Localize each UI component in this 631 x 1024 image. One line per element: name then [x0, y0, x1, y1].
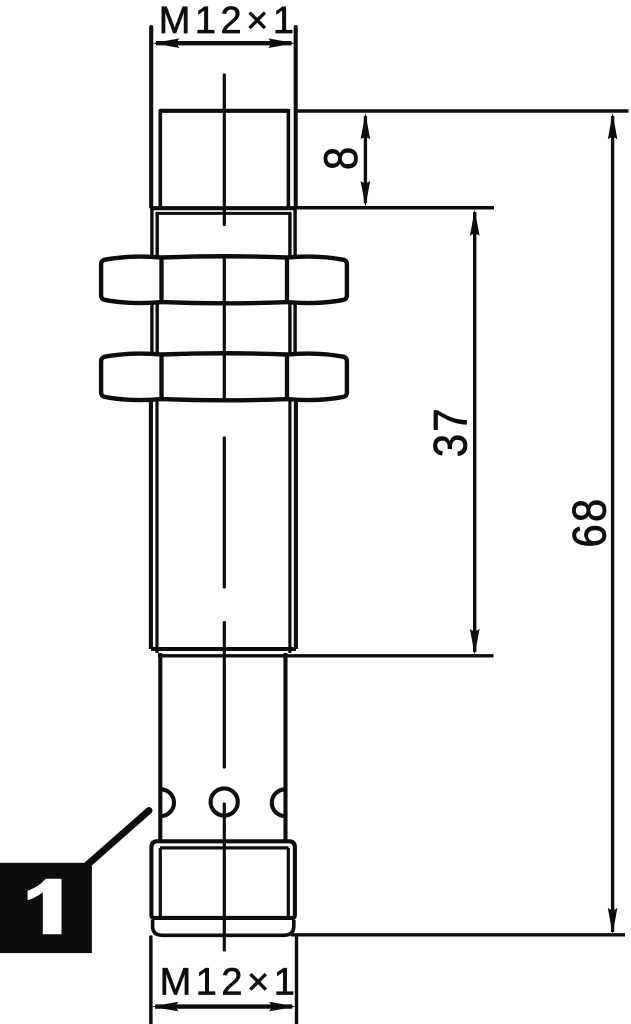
svg-text:8: 8: [315, 147, 368, 170]
svg-text:M12×1: M12×1: [160, 962, 300, 1004]
svg-text:68: 68: [563, 497, 616, 548]
svg-text:37: 37: [424, 406, 477, 457]
svg-text:M12×1: M12×1: [159, 0, 299, 42]
